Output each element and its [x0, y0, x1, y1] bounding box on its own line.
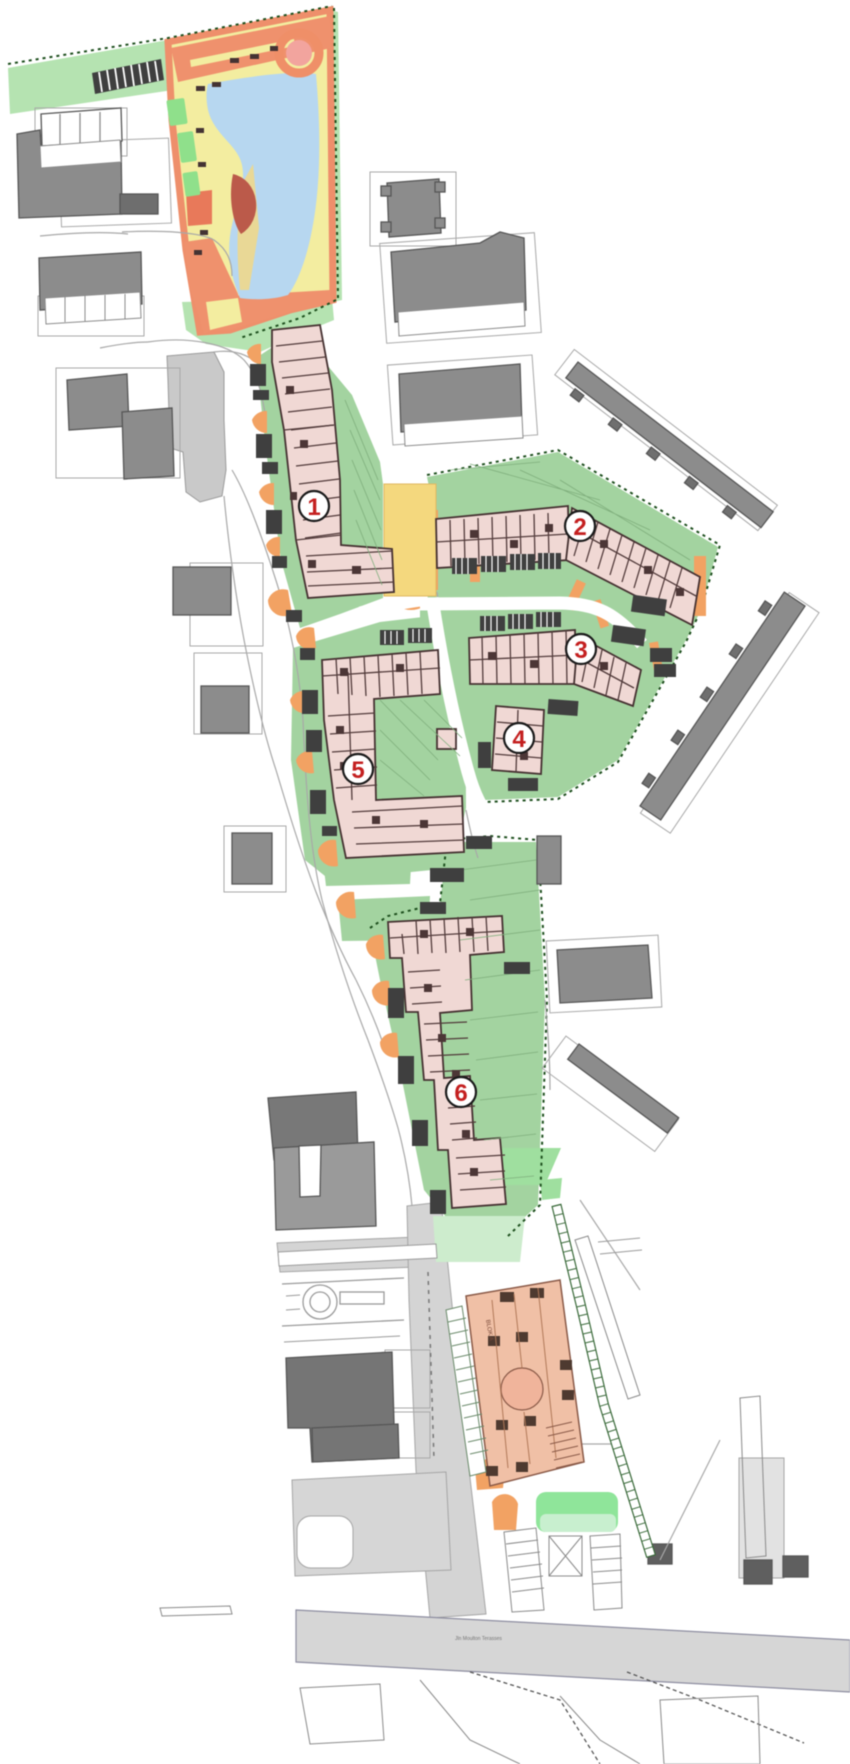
svg-text:5: 5: [351, 757, 364, 784]
svg-text:3: 3: [574, 637, 587, 664]
svg-text:Jln Moulton Terasses: Jln Moulton Terasses: [455, 1636, 502, 1642]
svg-text:4: 4: [512, 726, 526, 753]
svg-text:2: 2: [573, 514, 586, 541]
svg-text:6: 6: [454, 1080, 467, 1107]
svg-text:1: 1: [307, 494, 320, 521]
